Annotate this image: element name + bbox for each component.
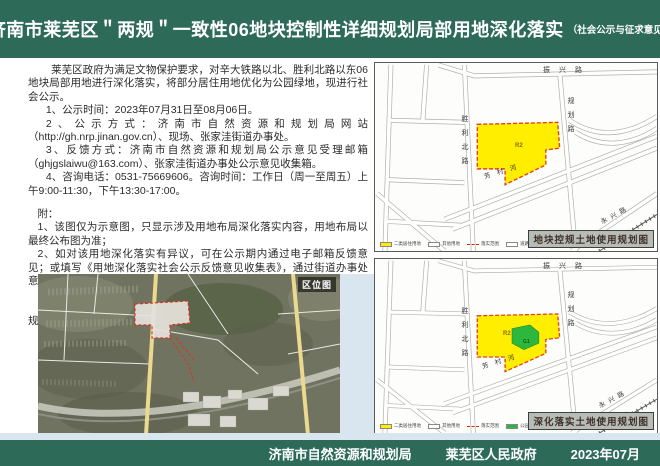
footer-government: 莱芜区人民政府 — [446, 444, 537, 463]
plot-code-r2: R2 — [515, 143, 523, 149]
location-map: 区位图 — [38, 274, 340, 435]
plan-map-current-canvas — [375, 63, 657, 251]
page-accent-strip — [340, 274, 374, 435]
road-label-shengli-north: 胜利北路 — [459, 307, 469, 363]
page-title: 济南市莱芜区＂两规＂一致性06地块控制性详细规划局部用地深化落实 — [0, 16, 564, 42]
legend-label: 落实范围 — [481, 241, 499, 247]
title-bar: 济南市莱芜区＂两规＂一致性06地块控制性详细规划局部用地深化落实 （社会公示与征… — [0, 0, 660, 58]
legend-item: 道路 — [506, 241, 529, 247]
plan-map-current: 振兴路 胜利北路 规划路 芳村河 永兴路 辛大铁路 R2 二类居住用地 其他用地… — [374, 62, 658, 252]
legend-item: 落实范围 — [467, 423, 499, 429]
road-label-zhenxing: 振兴路 — [543, 65, 591, 75]
notice-item-method: 2、公示方式：济南市自然资源和规划局网站（http://gh.nrp.jinan… — [28, 118, 368, 145]
residential-swatch — [380, 242, 392, 247]
other-land-swatch — [428, 242, 440, 247]
notice-item-phone: 4、咨询电话：0531-75669606。咨询时间：工作日（周一至周五）上午9:… — [28, 171, 368, 198]
park-swatch — [506, 424, 518, 429]
map-caption-current: 地块控规土地使用规划图 — [528, 230, 654, 248]
legend-label: 其他用地 — [442, 423, 460, 429]
legend-item: 落实范围 — [467, 241, 499, 247]
boundary-swatch — [467, 244, 479, 245]
footer-agency: 济南市自然资源和规划局 — [269, 444, 412, 463]
plot-code-g1: G1 — [523, 339, 530, 345]
road-swatch — [506, 242, 518, 247]
legend-label: 二类居住用地 — [394, 241, 421, 247]
location-map-canvas — [38, 274, 340, 435]
legend-item: 二类居住用地 — [380, 423, 421, 429]
notice-item-time: 1、公示时间：2023年07月31日至08月06日。 — [28, 104, 368, 117]
plan-map-deepened: 振兴路 胜利北路 规划路 芳村河 永兴路 辛大铁路 R2 G1 二类居住用地 其… — [374, 258, 658, 434]
appendix-note-1: 1、该图仅为示意图，只显示涉及用地布局深化落实内容，用地布局以最终公布图为准； — [28, 221, 368, 248]
legend-label: 落实范围 — [481, 423, 499, 429]
legend-map-current: 二类居住用地 其他用地 落实范围 道路 — [380, 241, 529, 247]
location-map-title: 区位图 — [298, 277, 336, 292]
notice-item-feedback: 3、反馈方式：济南市自然资源和规划局公示意见受理邮箱（ghjgslaiwu@16… — [28, 144, 368, 171]
boundary-swatch — [467, 426, 479, 427]
appendix-label: 附： — [28, 208, 368, 221]
road-label-guihua: 规划路 — [565, 291, 575, 333]
road-label-zhenxing: 振兴路 — [543, 261, 591, 271]
public-notice-page: 济南市莱芜区＂两规＂一致性06地块控制性详细规划局部用地深化落实 （社会公示与征… — [0, 0, 660, 466]
plan-map-deepened-canvas — [375, 259, 657, 433]
footer-bar: 济南市自然资源和规划局 莱芜区人民政府 2023年07月 — [0, 440, 660, 466]
road-label-shengli-north: 胜利北路 — [459, 115, 469, 171]
footer-date: 2023年07月 — [571, 444, 640, 463]
other-land-swatch — [428, 424, 440, 429]
map-caption-deepened: 深化落实土地使用规划图 — [528, 412, 654, 430]
residential-swatch — [380, 424, 392, 429]
legend-label: 二类居住用地 — [394, 423, 421, 429]
plot-code-r2: R2 — [503, 331, 511, 337]
road-label-guihua: 规划路 — [565, 97, 575, 139]
legend-item: 二类居住用地 — [380, 241, 421, 247]
notice-intro: 莱芜区政府为满足文物保护要求，对辛大铁路以北、胜利北路以东06地块局部用地进行深… — [28, 64, 368, 104]
legend-item: 其他用地 — [428, 423, 460, 429]
legend-item: 其他用地 — [428, 241, 460, 247]
page-accent-strip-bottom — [0, 433, 660, 440]
legend-label: 其他用地 — [442, 241, 460, 247]
page-subtitle: （社会公示与征求意见） — [568, 22, 660, 36]
